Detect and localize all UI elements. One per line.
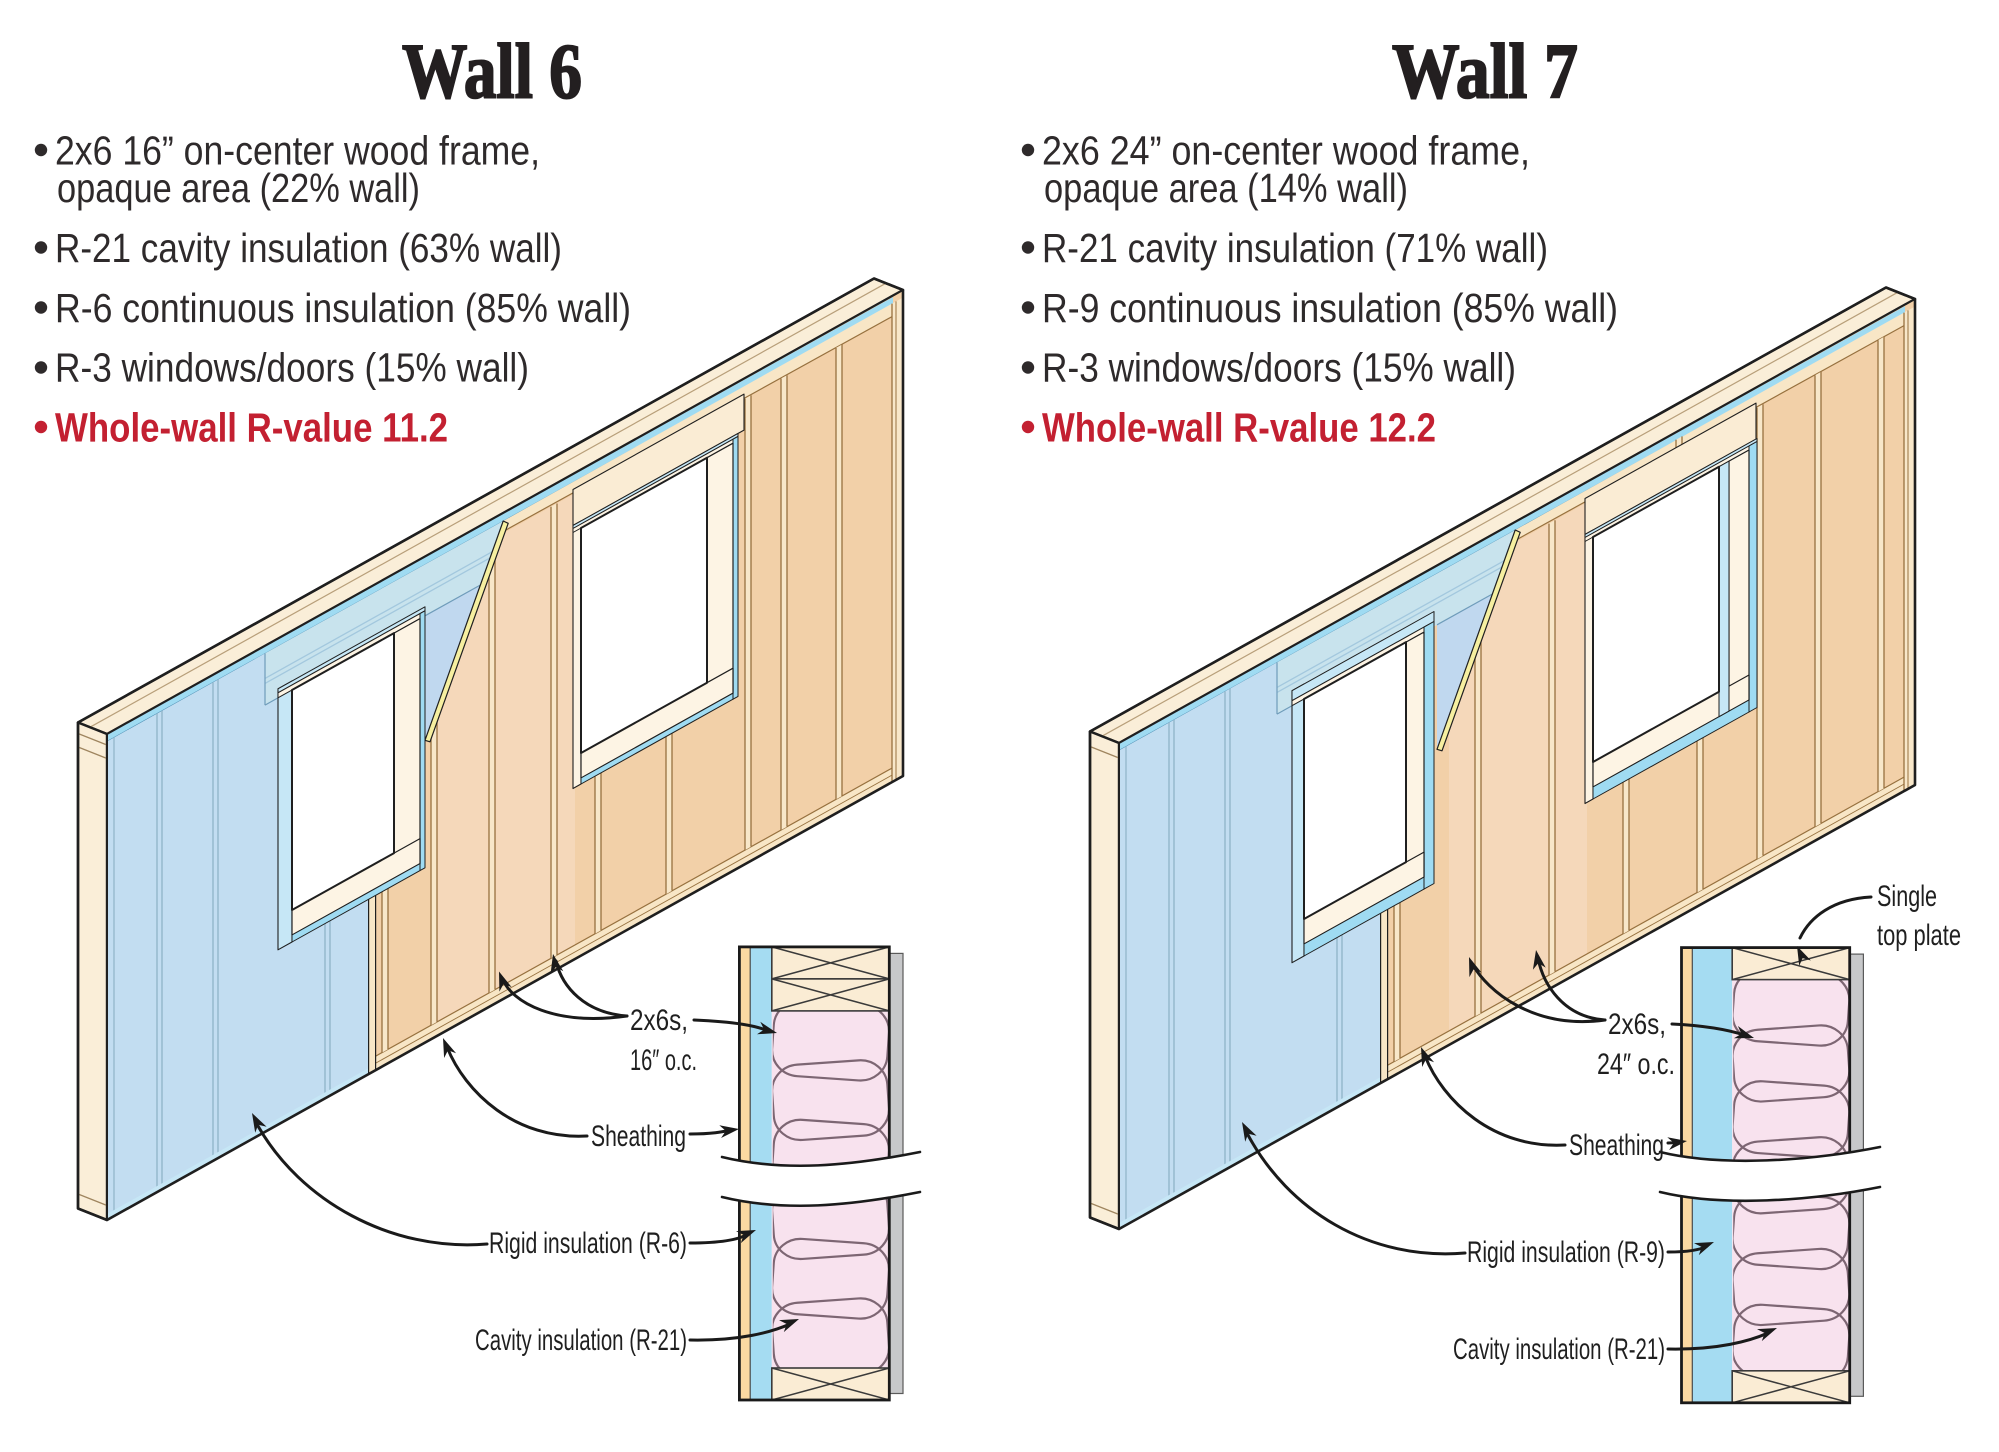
- svg-text:Sheathing: Sheathing: [1569, 1129, 1664, 1162]
- svg-text:R-3 windows/doors (15% wall): R-3 windows/doors (15% wall): [55, 345, 529, 391]
- svg-text:R-21 cavity insulation (71% wa: R-21 cavity insulation (71% wall): [1042, 225, 1548, 271]
- svg-text:Wall 7: Wall 7: [1392, 28, 1578, 115]
- svg-text:2x6s,: 2x6s,: [630, 1004, 688, 1037]
- svg-text:Whole-wall R-value 11.2: Whole-wall R-value 11.2: [55, 405, 448, 451]
- svg-text:Sheathing: Sheathing: [591, 1120, 686, 1153]
- svg-text:2x6s,: 2x6s,: [1608, 1008, 1666, 1041]
- svg-text:R-6 continuous insulation (85%: R-6 continuous insulation (85% wall): [55, 285, 631, 331]
- svg-text:Whole-wall R-value 12.2: Whole-wall R-value 12.2: [1042, 405, 1436, 451]
- svg-text:R-9 continuous insulation (85%: R-9 continuous insulation (85% wall): [1042, 285, 1618, 331]
- svg-text:opaque area (14% wall): opaque area (14% wall): [1044, 165, 1408, 211]
- svg-text:Rigid insulation (R-6): Rigid insulation (R-6): [489, 1227, 687, 1260]
- svg-text:Single: Single: [1877, 880, 1937, 913]
- svg-text:opaque area (22% wall): opaque area (22% wall): [57, 165, 420, 211]
- svg-text:Cavity insulation (R-21): Cavity insulation (R-21): [475, 1324, 687, 1357]
- svg-text:Rigid insulation (R-9): Rigid insulation (R-9): [1467, 1236, 1665, 1269]
- svg-text:top plate: top plate: [1877, 919, 1961, 952]
- svg-text:R-21 cavity insulation (63% wa: R-21 cavity insulation (63% wall): [55, 225, 562, 271]
- svg-text:24″ o.c.: 24″ o.c.: [1597, 1048, 1675, 1081]
- svg-text:Cavity insulation (R-21): Cavity insulation (R-21): [1453, 1333, 1665, 1366]
- svg-text:Wall 6: Wall 6: [402, 28, 582, 115]
- svg-text:16″ o.c.: 16″ o.c.: [630, 1044, 697, 1077]
- svg-text:R-3 windows/doors (15% wall): R-3 windows/doors (15% wall): [1042, 345, 1516, 391]
